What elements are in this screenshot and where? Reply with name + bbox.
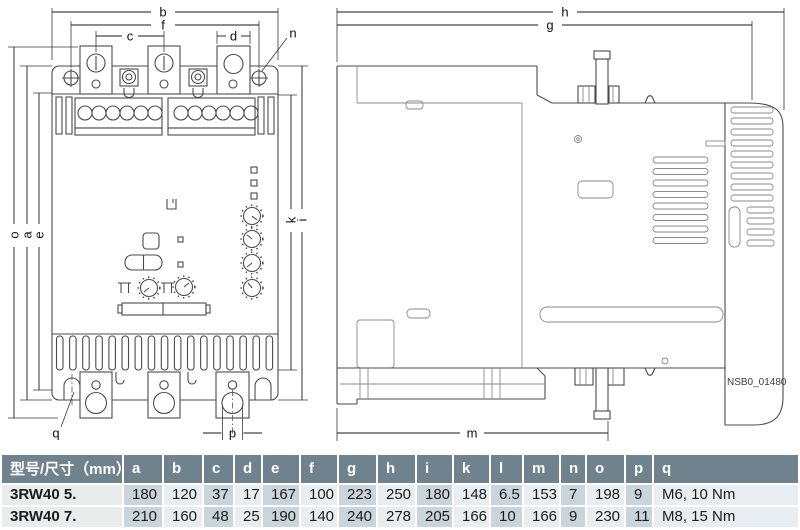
device-base-side: [337, 368, 725, 404]
col-header-d: d: [235, 455, 261, 483]
table-cell: 100: [301, 485, 337, 505]
table-cell: 48: [204, 507, 233, 527]
dim-label-c: c: [127, 29, 134, 44]
table-cell: 240: [339, 507, 376, 527]
table-cell: 278: [378, 507, 415, 527]
col-header-o: o: [587, 455, 624, 483]
col-header-c: c: [204, 455, 233, 483]
col-header-e: e: [263, 455, 299, 483]
table-cell: 250: [378, 485, 415, 505]
nameplate-window: [578, 181, 613, 198]
table-cell: 9: [626, 485, 652, 505]
dim-label-g: g: [546, 18, 553, 33]
snap-catch-bottom: [645, 368, 655, 375]
lower-terminal-lug: [575, 368, 624, 419]
col-header-g: g: [339, 455, 376, 483]
table-cell: M6, 10 Nm: [654, 485, 798, 505]
technical-drawing: b f c d n o a e: [0, 0, 800, 452]
table-cell: 230: [587, 507, 624, 527]
table-cell: 205: [417, 507, 452, 527]
dimensions-table: 型号/尺寸（mm） a b c d e f g h i k l m n o p …: [0, 453, 800, 529]
snap-catch-top: [645, 96, 655, 103]
table-cell: 148: [454, 485, 489, 505]
dim-label-p: p: [229, 426, 236, 441]
col-header-h: h: [378, 455, 415, 483]
col-header-q: q: [654, 455, 798, 483]
figure-id-label: NSB0_01480: [727, 377, 787, 388]
col-header-k: k: [454, 455, 489, 483]
col-header-a: a: [124, 455, 162, 483]
col-header-m: m: [524, 455, 559, 483]
col-header-p: p: [626, 455, 652, 483]
dim-label-f: f: [161, 18, 165, 33]
table-cell: 11: [626, 507, 652, 527]
table-cell: 180: [417, 485, 452, 505]
dim-label-m: m: [467, 426, 478, 441]
model-cell: 3RW40 5.: [2, 485, 122, 505]
side-groove: [540, 307, 723, 322]
table-cell: 153: [524, 485, 559, 505]
screw-point: [662, 358, 668, 364]
table-cell: M8, 15 Nm: [654, 507, 798, 527]
table-cell: 223: [339, 485, 376, 505]
dim-label-n: n: [289, 26, 296, 41]
bottom-terminal-tabs: [80, 372, 249, 434]
col-header-model: 型号/尺寸（mm）: [2, 455, 122, 483]
side-view-drawing: h g m NSB0_01480: [337, 5, 787, 442]
upper-terminal-lug: [578, 51, 619, 104]
model-cell: 3RW40 7.: [2, 507, 122, 527]
table-cell: 180: [124, 485, 162, 505]
table-cell: 190: [263, 507, 299, 527]
table-cell: 166: [524, 507, 559, 527]
table-cell: 17: [235, 485, 261, 505]
col-header-i: i: [417, 455, 452, 483]
table-cell: 9: [561, 507, 585, 527]
dim-label-e: e: [32, 231, 47, 238]
table-cell: 10: [491, 507, 522, 527]
top-terminal-tabs: [80, 46, 250, 94]
table-cell: 140: [301, 507, 337, 527]
dimension-drawing-page: b f c d n o a e: [0, 0, 800, 530]
table-cell: 7: [561, 485, 585, 505]
col-header-l: l: [491, 455, 522, 483]
dim-label-h: h: [561, 5, 568, 20]
heatsink-housing-side: [337, 66, 552, 404]
table-cell: 210: [124, 507, 162, 527]
table-cell: 6.5: [491, 485, 522, 505]
table-row: 3RW40 7. 210 160 48 25 190 140 240 278 2…: [2, 507, 798, 527]
screw-point: [575, 136, 582, 143]
table-cell: 167: [263, 485, 299, 505]
table-cell: 166: [454, 507, 489, 527]
table-cell: 198: [587, 485, 624, 505]
table-header-row: 型号/尺寸（mm） a b c d e f g h i k l m n o p …: [2, 455, 798, 483]
table-cell: 160: [164, 507, 202, 527]
front-view-drawing: b f c d n o a e: [7, 5, 310, 441]
col-header-f: f: [301, 455, 337, 483]
table-cell: 25: [235, 507, 261, 527]
table-row: 3RW40 5. 180 120 37 17 167 100 223 250 1…: [2, 485, 798, 505]
dim-label-d: d: [230, 29, 237, 44]
dim-label-q: q: [52, 426, 59, 441]
dim-label-i: i: [295, 218, 310, 221]
col-header-b: b: [164, 455, 202, 483]
table-cell: 37: [204, 485, 233, 505]
col-header-n: n: [561, 455, 585, 483]
vent-slots: [653, 157, 708, 244]
table-cell: 120: [164, 485, 202, 505]
